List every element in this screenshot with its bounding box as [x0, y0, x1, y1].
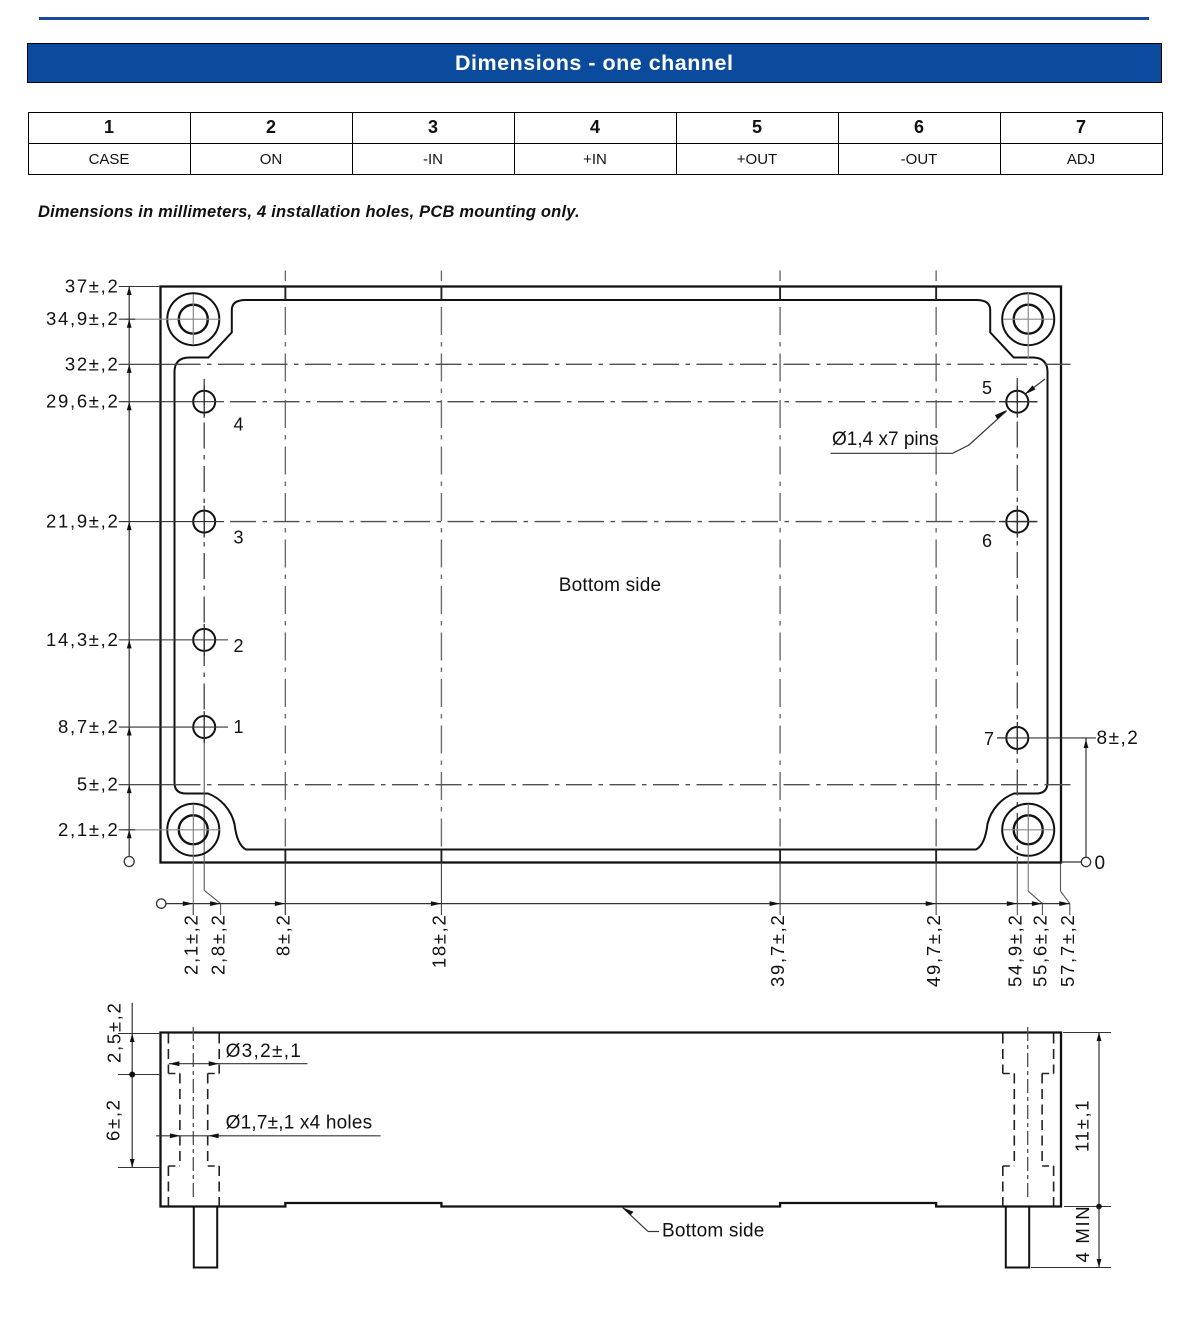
svg-text:2,5±,2: 2,5±,2 [104, 1002, 125, 1064]
svg-text:2,1±,2: 2,1±,2 [58, 819, 120, 840]
svg-text:8,7±,2: 8,7±,2 [58, 716, 120, 737]
svg-text:34,9±,2: 34,9±,2 [46, 308, 120, 329]
svg-text:49,7±,2: 49,7±,2 [923, 914, 944, 988]
svg-text:0: 0 [1095, 853, 1106, 874]
svg-text:54,9±,2: 54,9±,2 [1004, 914, 1025, 988]
svg-text:2,1±,2: 2,1±,2 [180, 914, 201, 976]
svg-text:2: 2 [233, 636, 243, 656]
svg-text:Bottom side: Bottom side [559, 575, 662, 596]
svg-text:Bottom side: Bottom side [662, 1221, 765, 1242]
svg-text:4: 4 [233, 415, 243, 435]
svg-text:3: 3 [233, 528, 243, 548]
svg-text:29,6±,2: 29,6±,2 [46, 391, 120, 412]
svg-text:Ø1,4 x7 pins: Ø1,4 x7 pins [832, 429, 939, 450]
svg-text:8±,2: 8±,2 [272, 914, 293, 957]
svg-text:Ø3,2±,1: Ø3,2±,1 [226, 1041, 303, 1062]
svg-text:5: 5 [982, 378, 992, 398]
svg-text:6±,2: 6±,2 [103, 1098, 124, 1141]
svg-text:4 MIN: 4 MIN [1072, 1205, 1093, 1263]
svg-text:55,6±,2: 55,6±,2 [1029, 914, 1050, 988]
svg-text:14,3±,2: 14,3±,2 [46, 629, 120, 650]
svg-text:21,9±,2: 21,9±,2 [46, 511, 120, 532]
svg-text:6: 6 [982, 531, 992, 551]
svg-text:2,8±,2: 2,8±,2 [208, 914, 229, 976]
svg-text:11±,1: 11±,1 [1072, 1099, 1093, 1152]
svg-text:7: 7 [984, 729, 994, 749]
svg-text:39,7±,2: 39,7±,2 [767, 914, 788, 988]
svg-text:1: 1 [233, 717, 243, 737]
svg-text:32±,2: 32±,2 [65, 353, 120, 374]
svg-text:5±,2: 5±,2 [77, 774, 120, 795]
svg-text:18±,2: 18±,2 [428, 914, 449, 969]
svg-text:37±,2: 37±,2 [65, 276, 120, 297]
svg-text:Ø1,7±,1 x4 holes: Ø1,7±,1 x4 holes [226, 1113, 373, 1134]
svg-text:8±,2: 8±,2 [1097, 728, 1140, 749]
svg-text:57,7±,2: 57,7±,2 [1057, 914, 1078, 988]
